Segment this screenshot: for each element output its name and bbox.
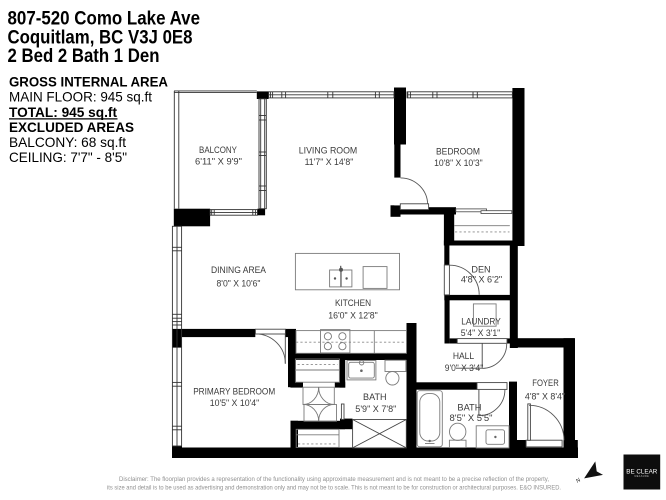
- svg-text:5'9" X 7'8": 5'9" X 7'8": [355, 404, 396, 414]
- svg-text:4'8" X 8'4": 4'8" X 8'4": [525, 392, 565, 402]
- svg-text:8'0" X 10'6": 8'0" X 10'6": [217, 278, 261, 288]
- svg-text:KITCHEN: KITCHEN: [335, 298, 371, 308]
- svg-text:TOTAL: 945 sq.ft: TOTAL: 945 sq.ft: [9, 104, 117, 120]
- svg-text:BALCONY: BALCONY: [199, 145, 237, 155]
- svg-text:BATH: BATH: [363, 392, 387, 402]
- svg-text:10'8" X 10'3": 10'8" X 10'3": [434, 158, 483, 168]
- svg-text:6'11" X 9'9": 6'11" X 9'9": [195, 157, 242, 167]
- svg-text:EXCLUDED AREAS: EXCLUDED AREAS: [9, 119, 134, 135]
- svg-text:5'4" X 3'1": 5'4" X 3'1": [461, 328, 501, 338]
- svg-text:its size and detail is to be u: its size and detail is to be used as adv…: [107, 484, 561, 491]
- svg-text:LAUNDRY: LAUNDRY: [461, 316, 501, 326]
- svg-text:10'5" X 10'4": 10'5" X 10'4": [210, 398, 260, 408]
- svg-text:MAIN FLOOR: 945 sq.ft: MAIN FLOOR: 945 sq.ft: [9, 89, 152, 105]
- svg-text:DEN: DEN: [471, 265, 490, 275]
- svg-text:GROSS INTERNAL AREA: GROSS INTERNAL AREA: [9, 74, 168, 90]
- svg-text:8'5" X 5'5": 8'5" X 5'5": [450, 413, 493, 423]
- svg-text:PRIMARY BEDROOM: PRIMARY BEDROOM: [193, 387, 275, 397]
- svg-text:CEILING: 7'7" - 8'5": CEILING: 7'7" - 8'5": [9, 149, 127, 165]
- svg-text:DINING AREA: DINING AREA: [211, 265, 267, 275]
- svg-text:BEDROOM: BEDROOM: [436, 146, 480, 156]
- svg-text:2 Bed 2 Bath 1 Den: 2 Bed 2 Bath 1 Den: [8, 46, 160, 67]
- svg-text:LIVING ROOM: LIVING ROOM: [299, 146, 358, 156]
- svg-text:Disclaimer: The floorplan prov: Disclaimer: The floorplan provides a rep…: [119, 476, 549, 483]
- svg-text:11'7" X 14'8": 11'7" X 14'8": [305, 157, 354, 167]
- svg-text:FOYER: FOYER: [532, 378, 559, 388]
- svg-text:9'0" X 3'4": 9'0" X 3'4": [445, 363, 484, 373]
- svg-text:BALCONY: 68 sq.ft: BALCONY: 68 sq.ft: [9, 134, 126, 150]
- svg-text:4'8" X 6'2": 4'8" X 6'2": [461, 275, 502, 285]
- svg-text:MEASURE: MEASURE: [634, 475, 649, 478]
- svg-text:HALL: HALL: [453, 351, 474, 361]
- svg-text:BATH: BATH: [457, 402, 481, 412]
- svg-text:16'0" X 12'8": 16'0" X 12'8": [328, 311, 378, 321]
